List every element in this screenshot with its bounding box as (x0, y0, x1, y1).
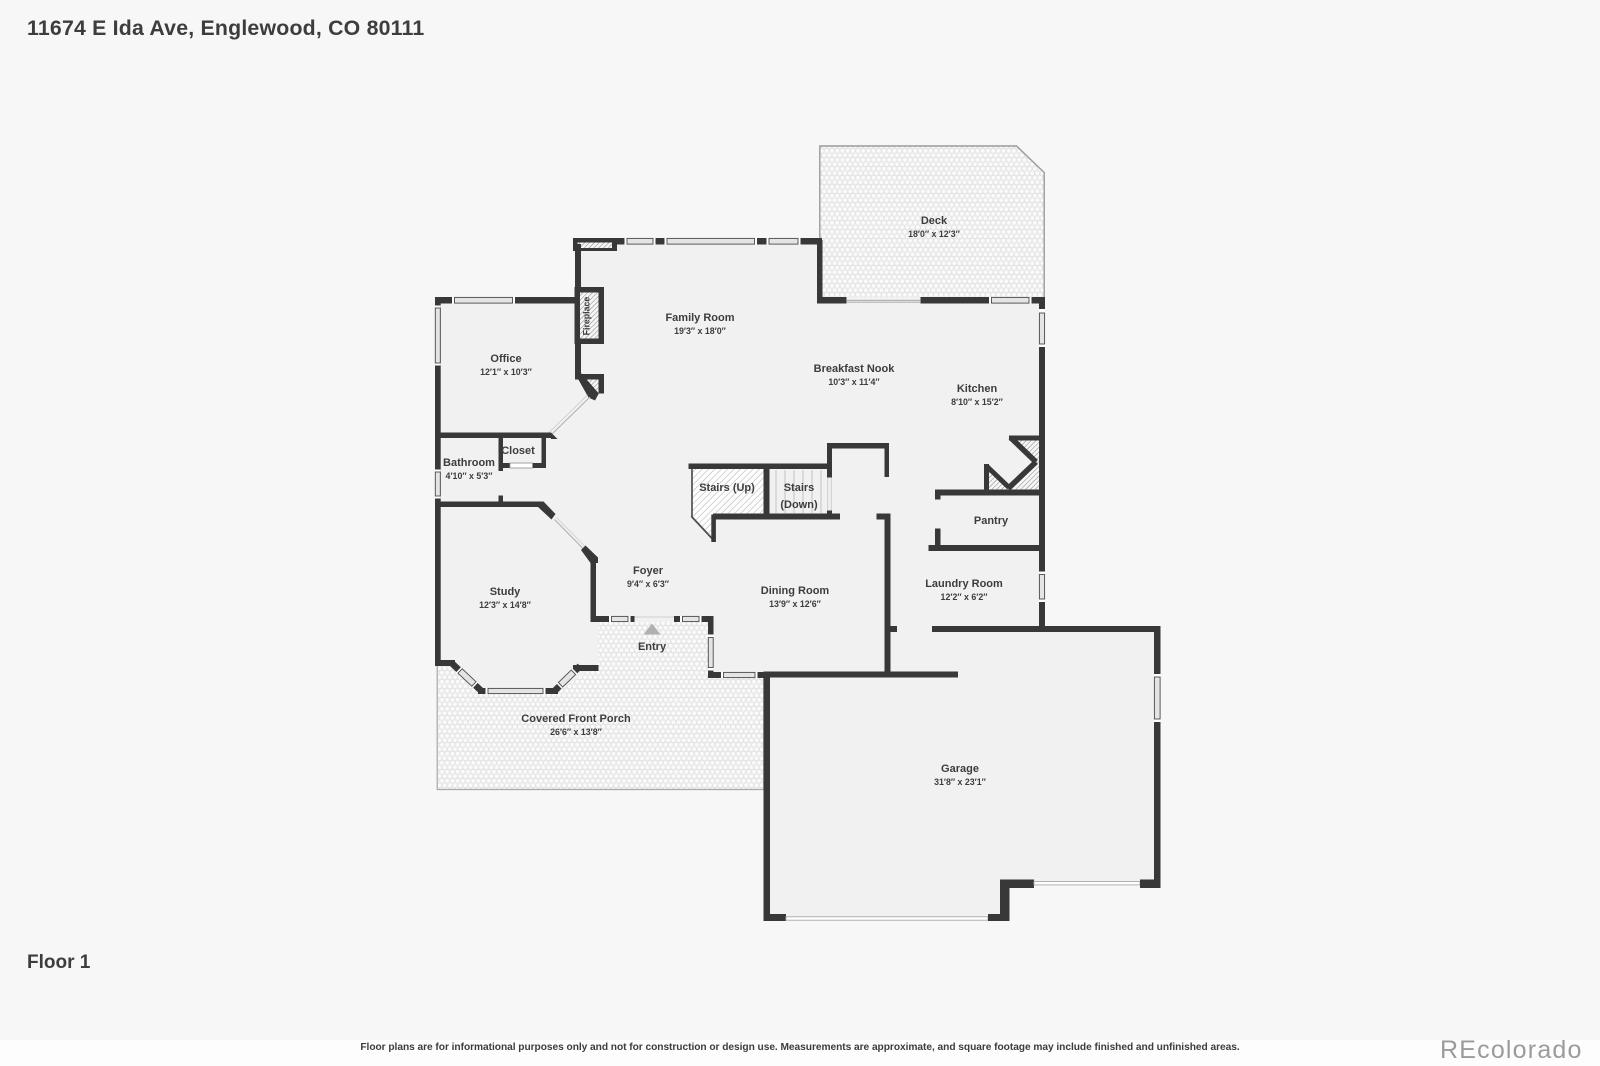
svg-text:Laundry Room: Laundry Room (925, 578, 1003, 590)
svg-text:Family Room: Family Room (665, 312, 734, 324)
svg-text:Bathroom: Bathroom (443, 457, 495, 469)
svg-text:26′6″ x 13′8″: 26′6″ x 13′8″ (550, 727, 603, 737)
svg-text:12′1″ x 10′3″: 12′1″ x 10′3″ (480, 367, 533, 377)
svg-text:Floor plans are for informatio: Floor plans are for informational purpos… (360, 1042, 1239, 1053)
svg-text:Kitchen: Kitchen (957, 383, 998, 395)
svg-text:Fireplace: Fireplace (582, 297, 592, 336)
svg-text:Entry: Entry (638, 641, 667, 653)
svg-text:18′0″ x 12′3″: 18′0″ x 12′3″ (908, 229, 961, 239)
svg-text:13′9″ x 12′6″: 13′9″ x 12′6″ (769, 599, 822, 609)
svg-text:9′4″ x 6′3″: 9′4″ x 6′3″ (627, 579, 670, 589)
svg-text:Stairs: Stairs (784, 482, 815, 494)
svg-text:Deck: Deck (921, 215, 948, 227)
svg-text:Breakfast Nook: Breakfast Nook (814, 363, 896, 375)
svg-text:Foyer: Foyer (633, 565, 664, 577)
svg-text:4′10″ x 5′3″: 4′10″ x 5′3″ (446, 471, 494, 481)
svg-text:Study: Study (490, 586, 521, 598)
svg-text:10′3″ x 11′4″: 10′3″ x 11′4″ (828, 377, 880, 387)
svg-text:Stairs (Up): Stairs (Up) (699, 482, 755, 494)
svg-text:(Down): (Down) (780, 499, 818, 511)
svg-text:12′2″ x 6′2″: 12′2″ x 6′2″ (941, 592, 989, 602)
svg-text:Pantry: Pantry (974, 515, 1009, 527)
svg-text:Closet: Closet (501, 445, 535, 457)
svg-text:Dining Room: Dining Room (761, 585, 830, 597)
svg-text:12′3″ x 14′8″: 12′3″ x 14′8″ (479, 600, 532, 610)
svg-text:19′3″ x 18′0″: 19′3″ x 18′0″ (674, 326, 727, 336)
svg-text:11674 E Ida Ave, Englewood, CO: 11674 E Ida Ave, Englewood, CO 80111 (27, 16, 424, 40)
svg-text:Floor 1: Floor 1 (27, 952, 91, 973)
svg-text:Office: Office (490, 353, 521, 365)
svg-text:Covered Front Porch: Covered Front Porch (521, 713, 631, 725)
svg-text:31′8″ x 23′1″: 31′8″ x 23′1″ (934, 777, 987, 787)
svg-text:REcolorado: REcolorado (1440, 1036, 1583, 1064)
svg-text:Garage: Garage (941, 763, 979, 775)
svg-text:8′10″ x 15′2″: 8′10″ x 15′2″ (951, 397, 1004, 407)
